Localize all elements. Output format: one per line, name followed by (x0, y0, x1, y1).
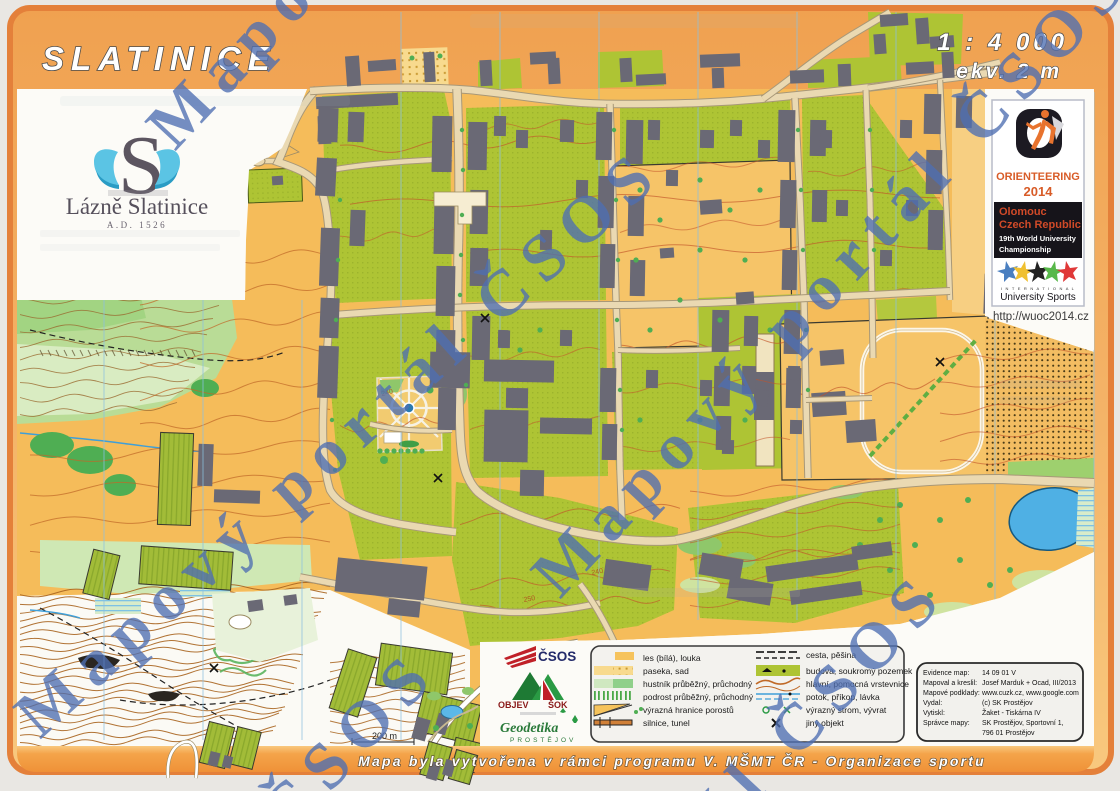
svg-text:hustník průběžný, průchodný: hustník průběžný, průchodný (643, 679, 753, 689)
svg-text:Žaket - Tiskárna IV: Žaket - Tiskárna IV (982, 708, 1041, 717)
svg-text:Championship: Championship (999, 245, 1052, 254)
svg-text:silnice, tunel: silnice, tunel (643, 718, 690, 728)
svg-text:(c) SK Prostějov: (c) SK Prostějov (982, 700, 1033, 707)
svg-text:Vydal:: Vydal: (923, 700, 942, 707)
svg-text:Mapoval a kreslil:: Mapoval a kreslil: (923, 680, 977, 687)
svg-text:Josef Marduk + Ocad, III/2013: Josef Marduk + Ocad, III/2013 (982, 680, 1076, 687)
svg-text:Správce mapy:: Správce mapy: (923, 720, 970, 727)
svg-text:PROSTĚJOV: PROSTĚJOV (510, 735, 576, 744)
svg-text:ČSOS: ČSOS (538, 649, 576, 664)
svg-text:podrost průběžný, průchodný: podrost průběžný, průchodný (643, 692, 754, 702)
svg-text:ORIENTEERING: ORIENTEERING (996, 171, 1080, 183)
svg-text:796 01 Prostějov: 796 01 Prostějov (982, 730, 1035, 737)
svg-text:paseka, sad: paseka, sad (643, 666, 689, 676)
svg-text:les (bílá), louka: les (bílá), louka (643, 653, 701, 663)
svg-text:OBJEV: OBJEV (498, 700, 529, 710)
svg-text:ŠOK: ŠOK (548, 699, 568, 710)
svg-text:Lázně Slatinice: Lázně Slatinice (66, 194, 208, 219)
svg-text:Geodetika: Geodetika (500, 721, 558, 736)
svg-text:Olomouc: Olomouc (999, 206, 1047, 218)
svg-text:www.cuzk.cz, www.google.com: www.cuzk.cz, www.google.com (981, 690, 1079, 697)
svg-text:SK Prostějov, Sportovní 1,: SK Prostějov, Sportovní 1, (982, 720, 1064, 727)
svg-text:14 09 01 V: 14 09 01 V (982, 670, 1016, 677)
svg-text:Vytiskl:: Vytiskl: (923, 710, 945, 717)
svg-text:Mapové podklady:: Mapové podklady: (923, 690, 980, 697)
svg-text:University Sports: University Sports (1000, 292, 1076, 303)
svg-text:2014: 2014 (1024, 184, 1054, 199)
svg-text:Mapa byla vytvořena v rámci pr: Mapa byla vytvořena v rámci programu V. … (358, 752, 986, 769)
svg-text:19th World University: 19th World University (999, 234, 1077, 243)
svg-text:I N T E R N A T I O N A L: I N T E R N A T I O N A L (1001, 286, 1075, 291)
svg-text:Czech Republic: Czech Republic (999, 219, 1081, 231)
svg-text:výrazná hranice porostů: výrazná hranice porostů (643, 705, 734, 715)
svg-text:Evidence map:: Evidence map: (923, 670, 969, 677)
svg-text:http://wuoc2014.cz: http://wuoc2014.cz (993, 311, 1089, 323)
svg-text:A.D. 1526: A.D. 1526 (107, 220, 167, 230)
